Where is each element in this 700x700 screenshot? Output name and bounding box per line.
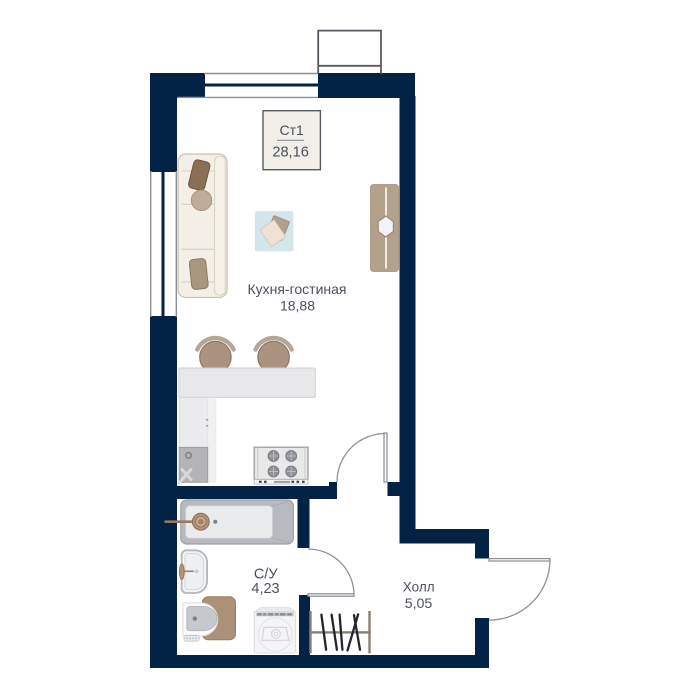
svg-text:Холл: Холл: [403, 579, 435, 594]
svg-text:5,05: 5,05: [405, 596, 433, 612]
svg-text:Кухня-гостиная: Кухня-гостиная: [247, 281, 346, 297]
svg-text:18,88: 18,88: [280, 298, 315, 314]
svg-text:4,23: 4,23: [251, 581, 279, 597]
svg-text:Ст1: Ст1: [280, 122, 305, 138]
svg-text:28,16: 28,16: [272, 145, 309, 161]
